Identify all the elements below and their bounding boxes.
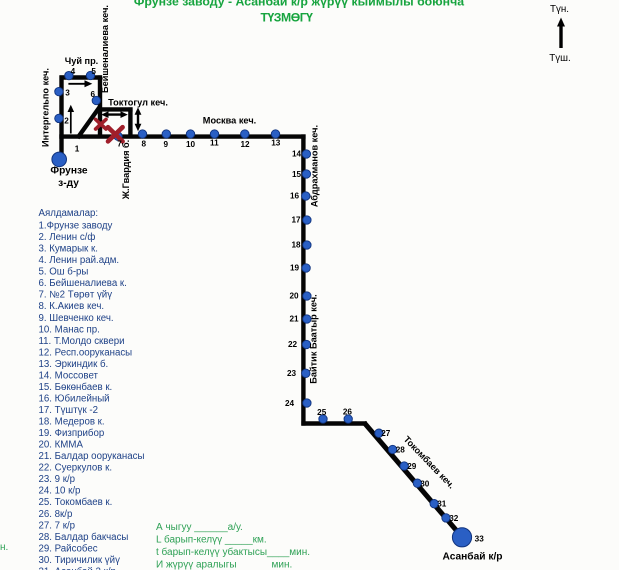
svg-text:14: 14 [292,150,302,159]
svg-text:1.Фрунзе заводу: 1.Фрунзе заводу [39,221,113,232]
svg-text:Ж.Гвардия б.: Ж.Гвардия б. [121,140,131,200]
svg-text:Фрунзе: Фрунзе [50,166,88,177]
svg-text:14. Моссовет: 14. Моссовет [39,370,99,381]
svg-text:1: 1 [75,145,80,154]
svg-text:10: 10 [186,140,196,149]
svg-text:И жүрүү аралыгы мин.: И жүрүү аралыгы мин. [156,560,292,570]
svg-text:6. Бейшеналиева к.: 6. Бейшеналиева к. [39,278,127,289]
svg-text:12: 12 [240,140,250,149]
svg-text:t барып-келүү убактысы____мин.: t барып-келүү убактысы____мин. [156,546,310,558]
svg-text:30: 30 [420,480,430,489]
svg-text:24. 10 к/р: 24. 10 к/р [39,486,81,497]
svg-text:26: 26 [343,407,353,416]
svg-text:32: 32 [449,514,459,523]
svg-text:27. 7 к/р: 27. 7 к/р [39,520,76,531]
svg-text:27: 27 [381,429,391,438]
svg-text:25: 25 [317,408,327,417]
svg-text:31: 31 [437,500,447,509]
svg-text:3: 3 [65,89,70,98]
svg-text:24: 24 [285,399,295,408]
svg-text:15: 15 [292,170,302,179]
svg-text:2: 2 [64,116,69,125]
svg-text:10. Манас пр.: 10. Манас пр. [39,324,100,335]
svg-text:Токтогул кеч.: Токтогул кеч. [108,98,168,108]
svg-text:Абдрахманов кеч.: Абдрахманов кеч. [310,125,320,207]
svg-text:29. Райсобес: 29. Райсобес [39,543,98,554]
svg-text:23: 23 [287,369,297,378]
svg-text:25. Токомбаев к.: 25. Токомбаев к. [39,497,113,508]
svg-text:8. К.Акиев кеч.: 8. К.Акиев кеч. [39,301,105,312]
svg-text:7. №2 Төрөт үйү: 7. №2 Төрөт үйү [39,290,113,301]
svg-text:19: 19 [290,264,300,273]
svg-text:Аялдамалар:: Аялдамалар: [39,208,99,219]
svg-text:А чыгуу ______а/у.: А чыгуу ______а/у. [156,522,243,533]
svg-text:Интергельпо кеч.: Интергельпо кеч. [41,68,51,147]
svg-text:30. Тиричилик үйү: 30. Тиричилик үйү [39,555,121,566]
svg-text:13: 13 [271,139,281,148]
svg-text:31. Асанбай 2 к/р: 31. Асанбай 2 к/р [39,566,116,570]
svg-text:Түн.: Түн. [550,4,569,15]
svg-text:L барып-келүү _____км.: L барып-келүү _____км. [156,534,267,546]
svg-text:5. Ош б-ры: 5. Ош б-ры [39,267,89,278]
svg-text:23. 9 к/р: 23. 9 к/р [39,474,76,485]
svg-text:26. 8к/р: 26. 8к/р [39,509,73,520]
svg-text:12. Респ.ооруканасы: 12. Респ.ооруканасы [39,347,133,358]
svg-text:4. Ленин рай.адм.: 4. Ленин рай.адм. [39,255,120,266]
svg-text:11. Т.Молдо сквери: 11. Т.Молдо сквери [39,336,125,347]
svg-text:8: 8 [142,140,147,149]
svg-text:3. Кумарык к.: 3. Кумарык к. [39,244,98,255]
svg-text:Түш.: Түш. [549,53,570,64]
svg-text:17. Түштүк -2: 17. Түштүк -2 [39,405,99,416]
svg-text:22: 22 [288,340,298,349]
svg-text:11: 11 [210,139,219,148]
svg-text:Асанбай к/р: Асанбай к/р [442,551,502,563]
svg-text:16. Юбилейный: 16. Юбилейный [39,394,110,405]
svg-text:17: 17 [291,216,301,225]
svg-text:ТҮЗМӨГҮ: ТҮЗМӨГҮ [260,10,313,24]
svg-text:9. Шевченко кеч.: 9. Шевченко кеч. [39,313,114,324]
svg-text:28. Балдар бакчасы: 28. Балдар бакчасы [39,532,129,543]
svg-text:н.: н. [0,542,8,553]
svg-text:Бейшеналиева кеч.: Бейшеналиева кеч. [100,5,110,93]
svg-text:4: 4 [71,67,76,76]
svg-text:5: 5 [91,67,96,76]
svg-text:28: 28 [396,446,406,455]
svg-text:29: 29 [407,462,417,471]
svg-text:33: 33 [475,535,485,544]
svg-text:22. Суеркулов к.: 22. Суеркулов к. [39,463,113,474]
svg-text:18: 18 [291,241,301,250]
svg-text:13. Эркиндик б.: 13. Эркиндик б. [39,359,109,370]
svg-text:20: 20 [289,292,299,301]
svg-text:19. Физприбор: 19. Физприбор [39,428,105,439]
svg-text:9: 9 [164,140,169,149]
svg-text:Фрунзе заводу - Асанбай к/р ж: Фрунзе заводу - Асанбай к/р жүрүү кыймыл… [134,0,464,9]
svg-text:20. КММА: 20. КММА [39,440,84,451]
svg-text:6: 6 [91,90,96,99]
svg-text:з-ду: з-ду [58,178,79,189]
svg-text:18. Медеров к.: 18. Медеров к. [39,417,105,428]
svg-text:2. Ленин с/ф: 2. Ленин с/ф [39,232,96,243]
svg-text:Москва кеч.: Москва кеч. [203,115,256,125]
svg-text:15. Бөкөнбаев к.: 15. Бөкөнбаев к. [39,382,113,393]
svg-text:16: 16 [290,192,300,201]
svg-text:21: 21 [289,315,299,324]
svg-text:Чуй пр.: Чуй пр. [65,56,98,66]
svg-text:Байтик Баатыр кеч.: Байтик Баатыр кеч. [309,294,319,383]
svg-text:21. Балдар ооруканасы: 21. Балдар ооруканасы [39,451,145,462]
